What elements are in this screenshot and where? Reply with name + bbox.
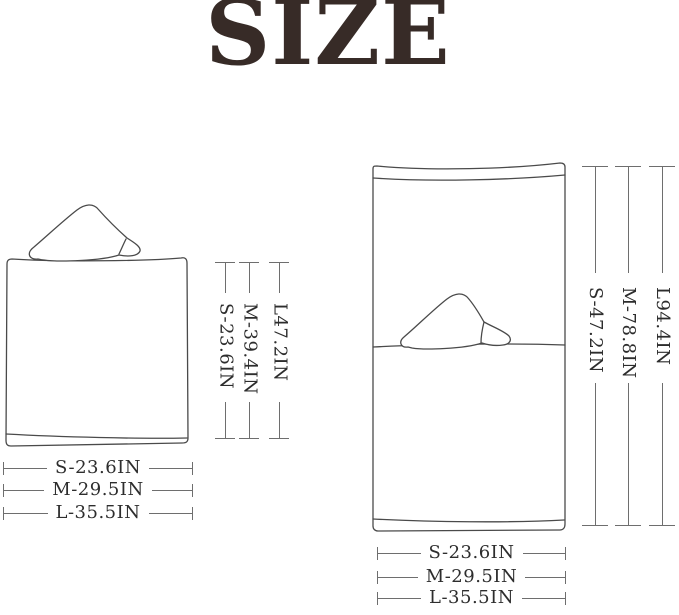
dim-line xyxy=(279,262,280,293)
dim-tick xyxy=(582,525,608,526)
dim-line xyxy=(595,166,596,273)
dim-line xyxy=(378,598,421,599)
dim-line xyxy=(522,598,565,599)
dim-tick xyxy=(192,507,193,520)
size-chart: SIZE S-23.6IN M-39.4IN L47.2IN xyxy=(0,0,679,615)
height-dim-label: L47.2IN xyxy=(270,303,290,381)
dim-line xyxy=(525,577,565,578)
dim-line xyxy=(149,468,192,469)
width-dim-label: M-29.5IN xyxy=(44,481,151,499)
width-dim-label: S-23.6IN xyxy=(47,459,149,477)
dim-line xyxy=(249,262,250,293)
dim-tick xyxy=(565,547,566,560)
hood-shape xyxy=(29,205,140,261)
width-dim-medium-left: M-29.5IN xyxy=(3,479,193,501)
dim-tick xyxy=(269,438,289,439)
towel-body-outline xyxy=(6,258,188,446)
dim-line xyxy=(279,402,280,439)
towel-top-hem-line xyxy=(373,175,565,180)
width-dim-small-right: S-23.6IN xyxy=(377,542,566,564)
towel-bottom-hem-line xyxy=(373,519,564,522)
dim-line xyxy=(378,577,418,578)
dim-tick xyxy=(615,525,641,526)
dim-tick xyxy=(565,571,566,584)
dim-line xyxy=(149,513,193,514)
dim-line xyxy=(4,513,48,514)
hood-shape xyxy=(401,294,511,349)
dim-tick xyxy=(215,438,235,439)
width-dim-large-right: L-35.5IN xyxy=(377,587,566,609)
width-dim-label: L-35.5IN xyxy=(421,589,522,607)
dim-tick xyxy=(565,592,566,605)
width-dim-small-left: S-23.6IN xyxy=(3,457,193,479)
width-dim-medium-right: M-29.5IN xyxy=(377,566,566,588)
towel-hem-line xyxy=(6,434,187,438)
dim-line xyxy=(152,490,192,491)
height-dim-label: M-78.8IN xyxy=(618,287,638,378)
height-dim-label: M-39.4IN xyxy=(240,303,260,394)
height-dim-label: S-23.6IN xyxy=(216,303,236,389)
width-dim-label: L-35.5IN xyxy=(48,504,149,522)
dim-tick xyxy=(192,484,193,497)
width-dim-label: M-29.5IN xyxy=(418,568,525,586)
dim-line xyxy=(4,468,47,469)
folded-towel-drawing xyxy=(0,195,210,460)
dim-line xyxy=(249,402,250,439)
width-dim-label: S-23.6IN xyxy=(421,544,523,562)
height-dim-label: S-47.2IN xyxy=(585,287,605,373)
dim-line xyxy=(662,166,663,273)
height-dim-label: L94.4IN xyxy=(652,287,672,365)
dim-line xyxy=(4,490,44,491)
height-dim-medium-right: M-78.8IN xyxy=(614,0,642,615)
towel-body-outline xyxy=(373,163,565,531)
unfolded-towel-drawing xyxy=(360,150,575,545)
height-dim-large-left: L47.2IN xyxy=(269,0,290,615)
dim-tick xyxy=(649,525,675,526)
width-dim-large-left: L-35.5IN xyxy=(3,502,193,524)
height-dim-large-right: L94.4IN xyxy=(648,0,676,615)
dim-line xyxy=(628,166,629,273)
dim-line xyxy=(662,383,663,526)
height-dim-small-left: S-23.6IN xyxy=(215,0,236,615)
dim-tick xyxy=(192,462,193,475)
dim-line xyxy=(595,383,596,526)
height-dim-medium-left: M-39.4IN xyxy=(239,0,260,615)
dim-tick xyxy=(239,438,259,439)
dim-line xyxy=(378,553,421,554)
dim-line xyxy=(225,402,226,439)
dim-line xyxy=(523,553,566,554)
dim-line xyxy=(628,383,629,526)
height-dim-small-right: S-47.2IN xyxy=(581,0,609,615)
dim-line xyxy=(225,262,226,293)
